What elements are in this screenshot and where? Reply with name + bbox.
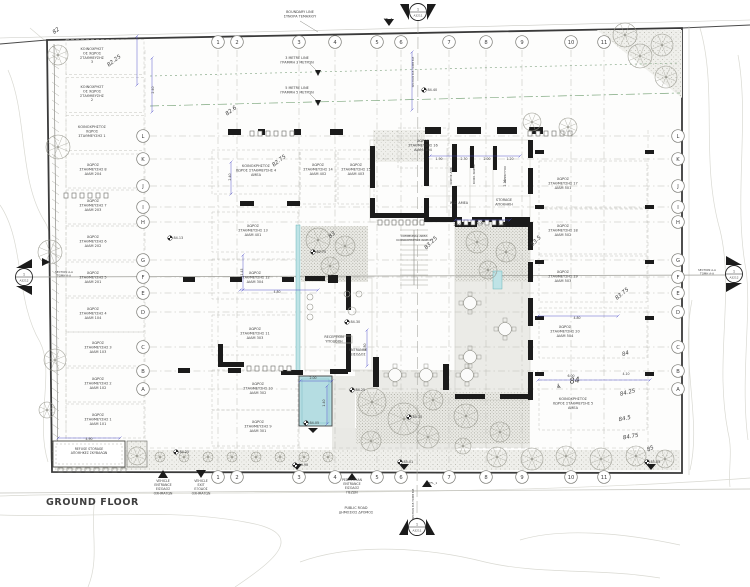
drawing-title: GROUND FLOOR — [46, 497, 139, 508]
vehicle-exit-label: VEHICLEEXITΕΞΟΔΟΣΟΧΗΜΑΤΩΝ — [192, 479, 211, 495]
koin-room-label: ΚΟΙΝ. ΧΩΡΟΣ — [472, 164, 476, 184]
grid-bubble-row-C: C — [137, 341, 150, 354]
grid-bubble-col-10-bottom: 10 — [565, 471, 578, 484]
dimension-text: 2.00 — [476, 221, 483, 225]
grid-bubble-col-6: 6 — [395, 36, 408, 49]
svg-text:A3212: A3212 — [19, 279, 28, 283]
svg-text:1: 1 — [416, 523, 418, 527]
svg-text:7: 7 — [447, 40, 450, 46]
vehicle-entrance-label: VEHICLEENTRANCEΕΙΣΟΔΟΣΟΧΗΜΑΤΩΝ — [154, 479, 173, 495]
svg-text:K: K — [141, 157, 145, 163]
dimension-text: 2.40 — [151, 86, 155, 93]
dimension-text: 1.20 — [506, 157, 513, 161]
svg-text:84.25: 84.25 — [356, 388, 366, 392]
svg-text:F: F — [677, 275, 680, 281]
grid-bubble-row-K-right: K — [672, 153, 685, 166]
svg-text:VEHICLEEXITΕΞΟΔΟΣΟΧΗΜΑΤΩΝ: VEHICLEEXITΕΞΟΔΟΣΟΧΗΜΑΤΩΝ — [192, 479, 211, 495]
svg-text:D: D — [141, 310, 145, 316]
svg-text:A: A — [676, 387, 680, 393]
svg-text:85.01: 85.01 — [404, 460, 414, 464]
section-marker: 1A3212 — [16, 259, 33, 295]
svg-text:1: 1 — [417, 8, 419, 12]
grid-bubble-col-9: 9 — [516, 36, 529, 49]
communal-area-label: COMMUNAL AREAΚΟΙΝΟΧΡΗΣΤΟΣ ΧΩΡΟΣ — [396, 234, 431, 242]
dimension-text: 4.10 — [622, 372, 629, 376]
section-marker: 1A3211 — [399, 519, 435, 536]
svg-text:A3211: A3211 — [412, 529, 421, 533]
grid-bubble-col-3: 3 — [293, 36, 306, 49]
svg-text:H: H — [676, 220, 680, 226]
refuse-storage-label: REFUSE STORAGEΑΠΟΘΗΚΕΣ ΣΚΥΒΑΛΩΝ — [71, 447, 108, 455]
dimension-text: 2.10 — [503, 179, 507, 186]
svg-text:84.30: 84.30 — [351, 320, 361, 324]
svg-text:1: 1 — [23, 273, 25, 277]
grid-bubble-col-1-bottom: 1 — [212, 471, 225, 484]
svg-text:SECTION B-B ΤΟΜΗ B-B: SECTION B-B ΤΟΜΗ B-B — [411, 489, 415, 520]
grid-bubble-col-5: 5 — [371, 36, 384, 49]
grid-bubble-col-9-bottom: 9 — [516, 471, 529, 484]
svg-text:L: L — [142, 134, 145, 140]
svg-text:ΚΟΙΝ. ΧΩΡΟΣ: ΚΟΙΝ. ΧΩΡΟΣ — [472, 164, 476, 184]
grid-bubble-row-L-right: L — [672, 130, 685, 143]
dimension-text: 2.90 — [453, 223, 460, 227]
svg-text:H: H — [141, 220, 145, 226]
section-marker: 1A3211 — [400, 4, 436, 21]
svg-text:COMMUNAL AREAΚΟΙΝΟΧΡΗΣΤΟΣ ΧΩΡΟ: COMMUNAL AREAΚΟΙΝΟΧΡΗΣΤΟΣ ΧΩΡΟΣ — [396, 234, 431, 242]
dimension-text: 4.80 — [273, 290, 280, 294]
grid-bubble-row-G: G — [137, 254, 150, 267]
spot-elevation: 84.15 — [407, 415, 423, 420]
svg-text:ΧΩΡΟΣ ΑΗΚ: ΧΩΡΟΣ ΑΗΚ — [449, 166, 453, 185]
grid-bubble-row-K: K — [137, 153, 150, 166]
spot-elevation: 84.90 — [293, 463, 309, 468]
svg-text:84.05: 84.05 — [310, 421, 320, 425]
contour-label: 82 — [52, 26, 62, 35]
svg-text:3: 3 — [297, 40, 300, 46]
svg-text:10: 10 — [568, 40, 575, 46]
grid-bubble-row-J-right: J — [672, 180, 685, 193]
svg-text:A: A — [141, 387, 145, 393]
dimension-text: 1.45 — [240, 268, 244, 275]
grid-bubble-row-F: F — [137, 271, 150, 284]
svg-text:REFUSE STORAGEΑΠΟΘΗΚΕΣ ΣΚΥΒΑΛΩ: REFUSE STORAGEΑΠΟΘΗΚΕΣ ΣΚΥΒΑΛΩΝ — [71, 447, 108, 455]
section-aa-left-label: SECTION A-AΤΟΜΗ A-A — [55, 270, 73, 278]
dimension-text: 2.30 — [460, 157, 467, 161]
dimension-text: 4.80 — [363, 343, 367, 350]
svg-text:85.03: 85.03 — [651, 460, 661, 464]
svg-text:C: C — [141, 345, 145, 351]
svg-text:5: 5 — [375, 475, 378, 481]
section-bb-bottom-label: SECTION B-B ΤΟΜΗ B-B — [411, 489, 415, 520]
tfl3-label: TFL_3 — [383, 17, 393, 21]
svg-text:SECTION B-B ΤΟΜΗ B-B: SECTION B-B ΤΟΜΗ B-B — [411, 57, 415, 88]
svg-text:F: F — [142, 275, 145, 281]
svg-text:SECTION A-AΤΟΜΗ A-A: SECTION A-AΤΟΜΗ A-A — [55, 270, 73, 278]
grid-bubble-col-3-bottom: 3 — [293, 471, 306, 484]
grid-bubble-col-5-bottom: 5 — [371, 471, 384, 484]
grid-bubble-row-G-right: G — [672, 254, 685, 267]
grid-bubble-row-B-right: B — [672, 365, 685, 378]
spot-elevation: 84.13 — [168, 236, 184, 241]
grid-bubble-row-B: B — [137, 365, 150, 378]
svg-text:E: E — [676, 291, 679, 297]
svg-text:84.13: 84.13 — [174, 236, 184, 240]
svg-text:PUBLIC ROADΔΗΜΟΣΙΟΣ ΔΡΟΜΟΣ: PUBLIC ROADΔΗΜΟΣΙΟΣ ΔΡΟΜΟΣ — [339, 506, 373, 514]
dimension-text: 4.90 — [85, 437, 92, 441]
svg-text:A3212: A3212 — [729, 276, 738, 280]
grid-bubble-col-2: 2 — [231, 36, 244, 49]
dimension-text: 1.90 — [435, 157, 442, 161]
svg-text:6: 6 — [399, 40, 402, 46]
dimension-text: 2.00 — [483, 157, 490, 161]
svg-text:9: 9 — [520, 40, 523, 46]
svg-text:G: G — [676, 258, 680, 264]
dimension-text: 4.80 — [573, 316, 580, 320]
ahk-room-label: ΧΩΡΟΣ ΑΗΚ — [449, 166, 453, 185]
svg-text:1: 1 — [216, 40, 219, 46]
svg-text:B: B — [141, 369, 145, 375]
tfl1-label: TFL_1 — [428, 481, 438, 485]
water-rill — [296, 225, 300, 373]
grid-bubble-row-D: D — [137, 306, 150, 319]
svg-text:TFL_1: TFL_1 — [428, 481, 438, 485]
svg-text:8: 8 — [484, 40, 487, 46]
spot-elevation: 85.01 — [398, 460, 414, 465]
spot-elevation: 84.40 — [422, 88, 438, 93]
grid-bubble-row-J: J — [137, 180, 150, 193]
dimension-text: 2.40 — [228, 173, 232, 180]
grid-bubble-row-I-right: I — [672, 201, 685, 214]
floor-plan-canvas: 1A32111A32111A32121A3212♿ ΚΟΙΝΟΧΡΗΣΤΟΣ Χ… — [0, 0, 750, 587]
spot-elevation: 82.70 — [311, 250, 327, 255]
svg-text:K: K — [676, 157, 680, 163]
dimension-text: 1.40 — [322, 399, 326, 406]
section-marker: 1A3212 — [726, 256, 743, 292]
svg-text:10: 10 — [568, 475, 575, 481]
svg-text:84.90: 84.90 — [299, 463, 309, 467]
grid-bubble-row-E: E — [137, 287, 150, 300]
boundary-line-label: BOUNDARY LINEΣΥΝΟΡΑ ΤΕΜΑΧΙΟΥ — [284, 10, 317, 18]
wheelchair-icon: ♿ — [556, 383, 561, 390]
spot-elevation: 84.25 — [350, 388, 366, 393]
svg-text:3: 3 — [297, 475, 300, 481]
svg-text:84.40: 84.40 — [428, 88, 438, 92]
svg-text:VEHICLEENTRANCEΕΙΣΟΔΟΣΟΧΗΜΑΤΩΝ: VEHICLEENTRANCEΕΙΣΟΔΟΣΟΧΗΜΑΤΩΝ — [154, 479, 173, 495]
grid-bubble-col-8: 8 — [480, 36, 493, 49]
svg-text:84.25: 84.25 — [180, 450, 190, 454]
svg-text:11: 11 — [601, 475, 608, 481]
spot-elevation: 84.30 — [345, 320, 361, 325]
svg-text:C: C — [676, 345, 680, 351]
grid-bubble-row-A: A — [137, 383, 150, 396]
svg-text:STORAGEΑΠΟΘΗΚΗ: STORAGEΑΠΟΘΗΚΗ — [495, 198, 513, 206]
section-aa-right-label: SECTION A-AΤΟΜΗ A-A — [698, 268, 716, 276]
grid-bubble-col-7: 7 — [443, 36, 456, 49]
grid-bubble-row-E-right: E — [672, 287, 685, 300]
grid-bubble-row-C-right: C — [672, 341, 685, 354]
svg-text:82.70: 82.70 — [317, 250, 327, 254]
spot-elevation: 85.03 — [645, 460, 661, 465]
reception-label: RECEPTIONΥΠΟΔΟΧΗ — [324, 335, 344, 343]
svg-text:1: 1 — [733, 270, 735, 274]
grid-bubble-col-11-bottom: 11 — [598, 471, 611, 484]
svg-text:SECTION A-AΤΟΜΗ A-A: SECTION A-AΤΟΜΗ A-A — [698, 268, 716, 276]
grid-bubble-col-4: 4 — [329, 36, 342, 49]
svg-text:2: 2 — [235, 40, 238, 46]
grid-bubble-col-4-bottom: 4 — [329, 471, 342, 484]
spot-elevation: 84.25 — [174, 450, 190, 455]
grid-bubble-col-11: 11 — [598, 36, 611, 49]
grid-bubble-col-8-bottom: 8 — [480, 471, 493, 484]
svg-text:9: 9 — [520, 475, 523, 481]
floor-plan-page: 1A32111A32111A32121A3212♿ ΚΟΙΝΟΧΡΗΣΤΟΣ Χ… — [0, 0, 750, 587]
grid-bubble-col-1: 1 — [212, 36, 225, 49]
grid-bubble-row-L: L — [137, 130, 150, 143]
svg-text:1: 1 — [216, 475, 219, 481]
svg-text:E: E — [141, 291, 144, 297]
wc-amea-label: W.C. ΑΜΕΑ — [450, 201, 469, 205]
svg-text:A3211: A3211 — [413, 14, 422, 18]
spot-elevation: 84.05 — [304, 421, 320, 426]
grid-bubble-col-2-bottom: 2 — [231, 471, 244, 484]
section-bb-top-label: SECTION B-B ΤΟΜΗ B-B — [411, 57, 415, 88]
grid-bubble-row-F-right: F — [672, 271, 685, 284]
svg-text:D: D — [676, 310, 680, 316]
grid-bubble-col-7-bottom: 7 — [443, 471, 456, 484]
svg-text:82: 82 — [52, 26, 62, 35]
svg-text:B: B — [676, 369, 680, 375]
svg-text:84: 84 — [569, 375, 580, 385]
grid-bubble-row-A-right: A — [672, 383, 685, 396]
contour-label: 84 — [569, 375, 580, 385]
svg-text:W.C. ΑΜΕΑ: W.C. ΑΜΕΑ — [450, 201, 469, 205]
svg-text:G: G — [141, 258, 145, 264]
svg-text:RECEPTIONΥΠΟΔΟΧΗ: RECEPTIONΥΠΟΔΟΧΗ — [324, 335, 344, 343]
svg-text:11: 11 — [601, 40, 608, 46]
svg-text:L: L — [677, 134, 680, 140]
svg-text:84.15: 84.15 — [413, 415, 423, 419]
storage-label: STORAGEΑΠΟΘΗΚΗ — [495, 198, 513, 206]
dimension-text: 2.90 — [498, 223, 505, 227]
water-feature — [493, 271, 502, 289]
public-road-label: PUBLIC ROADΔΗΜΟΣΙΟΣ ΔΡΟΜΟΣ — [339, 506, 373, 514]
grid-bubble-row-D-right: D — [672, 306, 685, 319]
grid-bubble-row-I: I — [137, 201, 150, 214]
svg-text:5: 5 — [375, 40, 378, 46]
svg-text:TFL_3: TFL_3 — [383, 17, 393, 21]
grid-bubble-col-6-bottom: 6 — [395, 471, 408, 484]
grid-bubble-row-H-right: H — [672, 216, 685, 229]
svg-text:BOUNDARY LINEΣΥΝΟΡΑ ΤΕΜΑΧΙΟΥ: BOUNDARY LINEΣΥΝΟΡΑ ΤΕΜΑΧΙΟΥ — [284, 10, 317, 18]
svg-text:8: 8 — [484, 475, 487, 481]
grid-bubble-row-H: H — [137, 216, 150, 229]
svg-text:7: 7 — [447, 475, 450, 481]
dimension-text: 2.00 — [309, 376, 316, 380]
svg-text:6: 6 — [399, 475, 402, 481]
svg-text:2: 2 — [235, 475, 238, 481]
grid-bubble-col-10: 10 — [565, 36, 578, 49]
